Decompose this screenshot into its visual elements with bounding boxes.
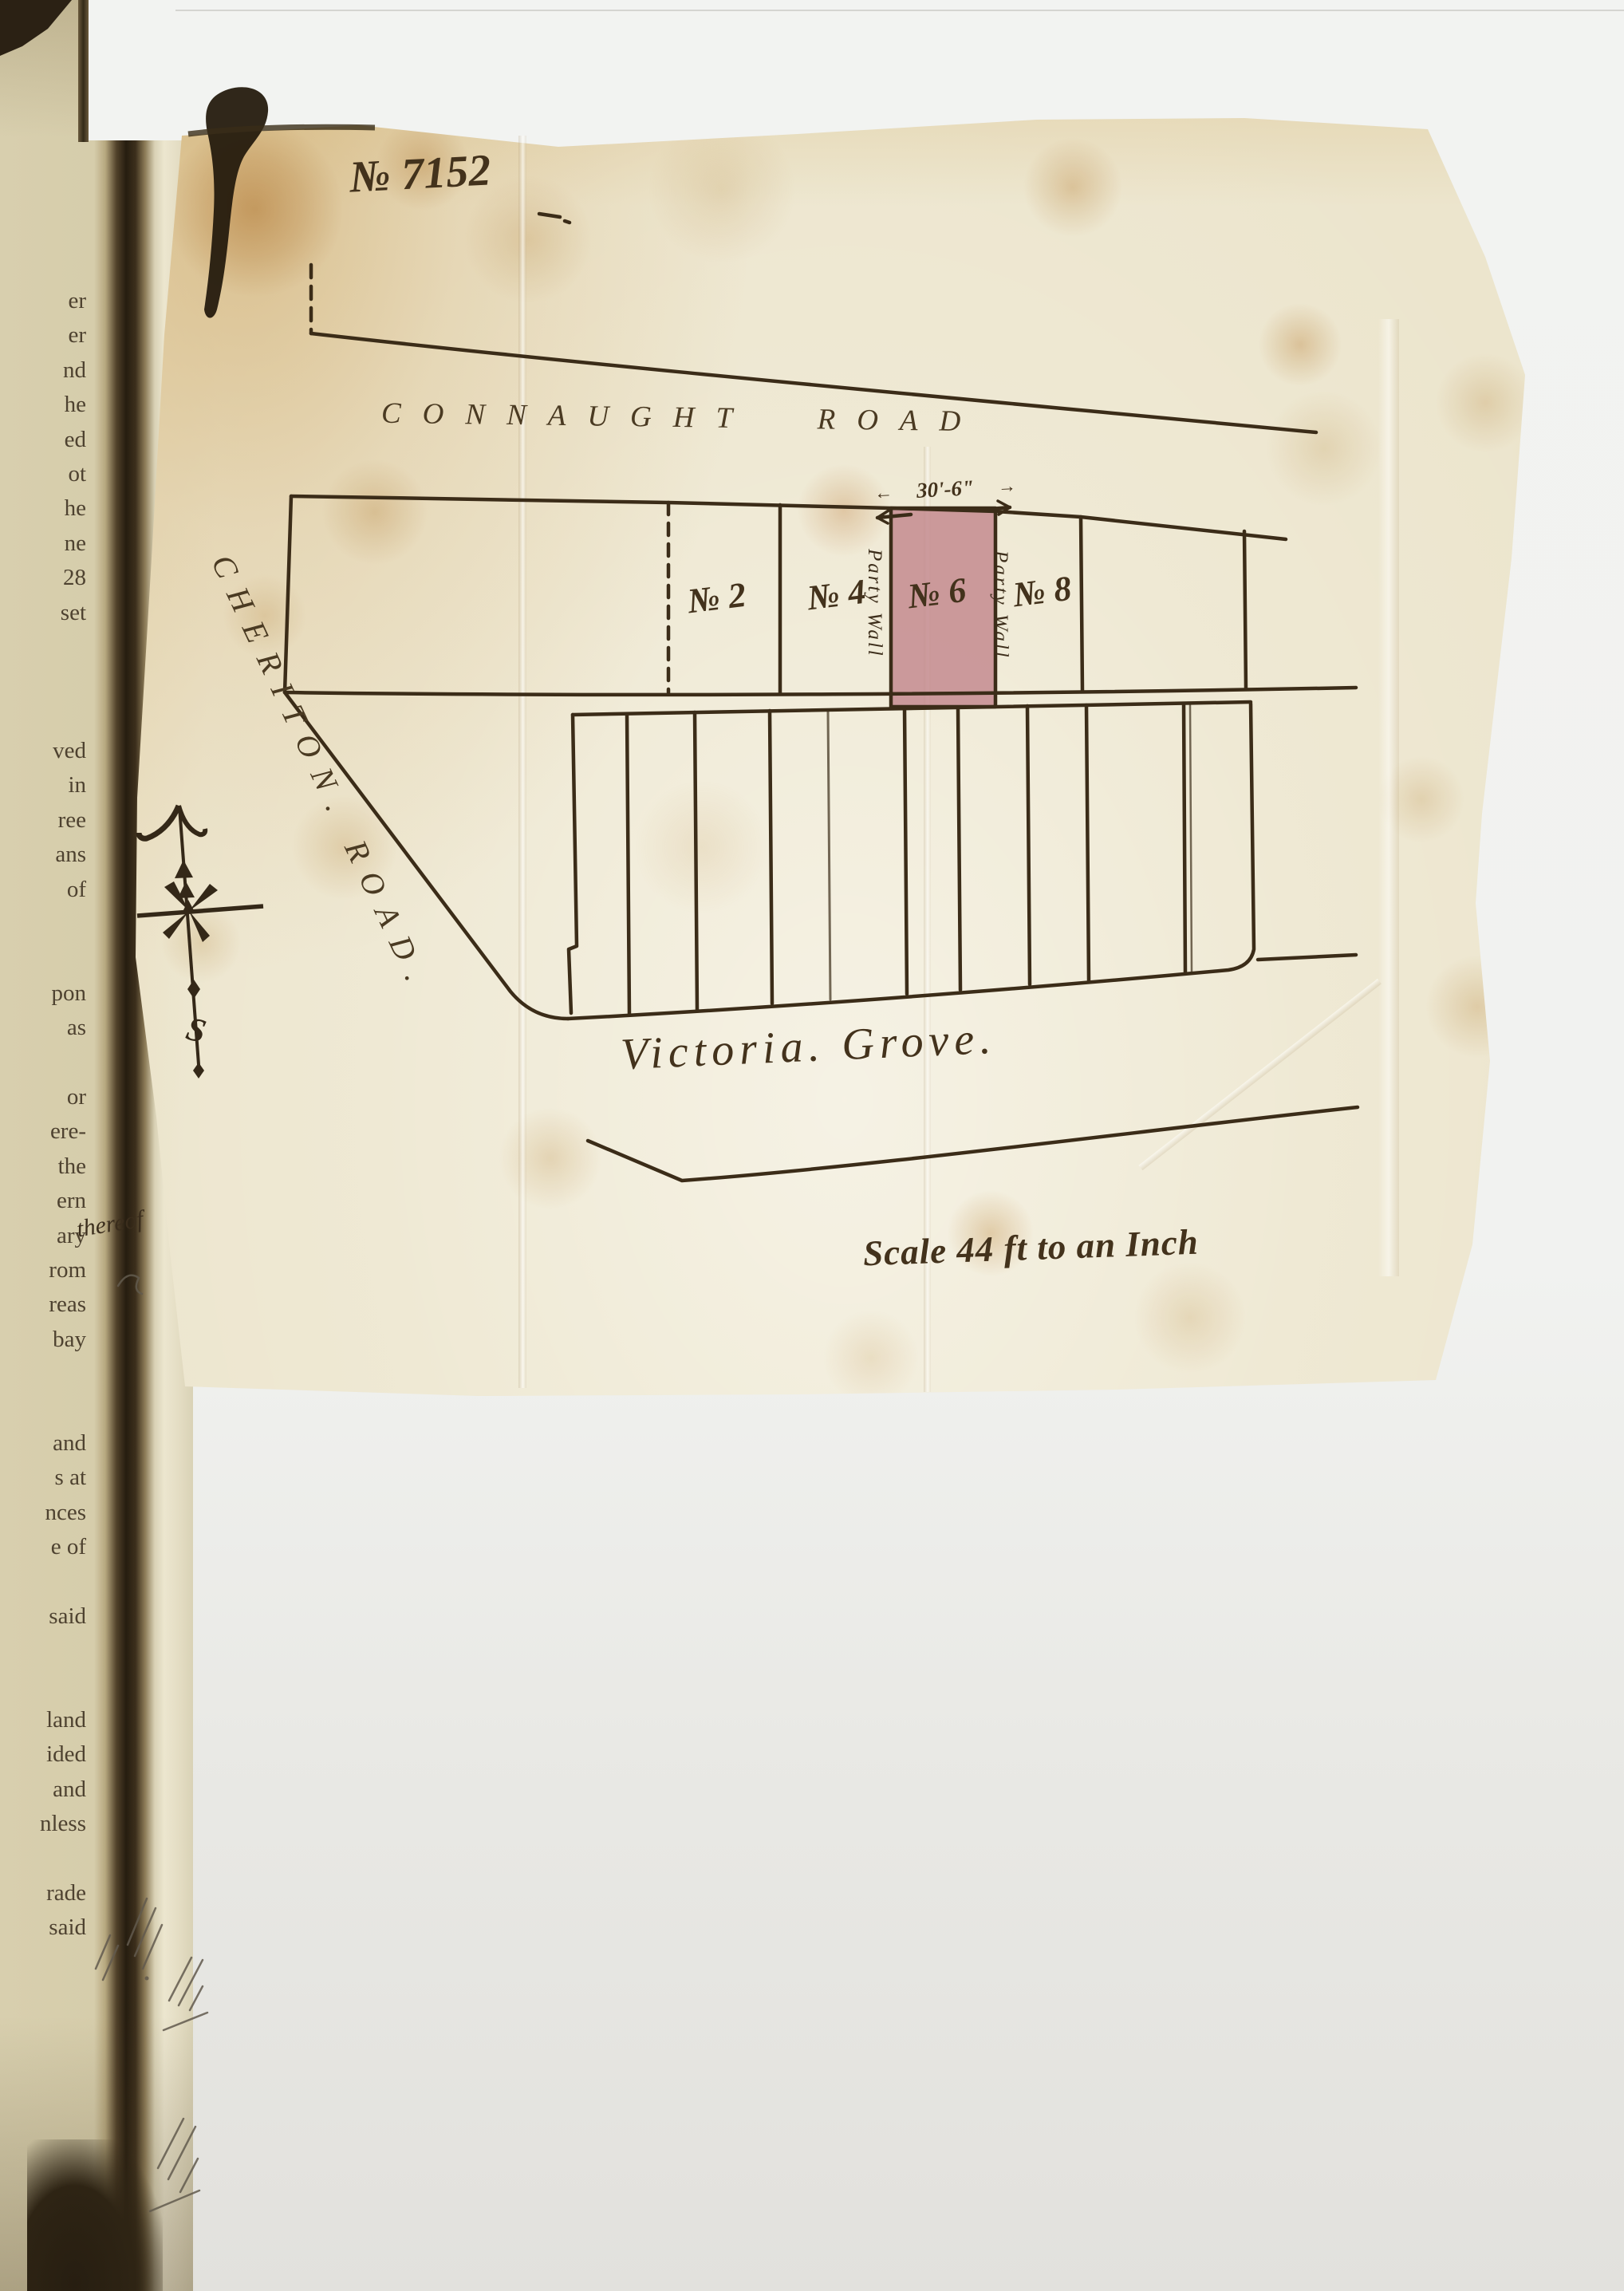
compass-crossbar — [137, 906, 263, 916]
lower-divider — [905, 708, 907, 994]
document-number: № 7152 — [348, 144, 491, 203]
lower-divider — [958, 708, 960, 990]
ink-smudge — [539, 214, 570, 223]
plot-label-no4: № 4 — [805, 571, 868, 619]
boundary-foot — [1258, 955, 1356, 960]
pencil-marks — [96, 1276, 207, 2211]
plot-label-no2: № 2 — [685, 574, 748, 622]
lower-block-left-notched — [569, 715, 577, 1013]
lower-divider — [828, 710, 830, 1000]
lower-divider — [1027, 706, 1030, 984]
lower-divider — [695, 712, 697, 1010]
plot-divider — [1081, 517, 1082, 691]
lower-divider — [1086, 705, 1089, 980]
dimension-arrow-left-icon: ← — [873, 482, 893, 503]
scanned-page: ererndheedothene28setvedinreeansofponaso… — [0, 0, 1624, 2291]
plot-label-no8: № 8 — [1011, 568, 1074, 616]
ink-blob — [204, 87, 268, 317]
lower-divider — [1190, 704, 1192, 973]
victoria-grove-south-line — [588, 1107, 1358, 1181]
party-wall-label-left: Party Wall — [863, 549, 885, 744]
dimension-arrow-right-icon: → — [997, 475, 1016, 497]
upper-block-front — [291, 496, 1286, 539]
plan-drawing — [0, 0, 1624, 2291]
plot-divider — [1244, 531, 1246, 689]
lower-divider — [627, 714, 629, 1015]
lower-divider — [770, 711, 772, 1004]
plot-label-no6: № 6 — [905, 570, 968, 617]
dimension-value: 30'-6" — [916, 475, 975, 503]
back-line — [285, 688, 1356, 695]
lower-block-bottom-right — [568, 704, 1254, 1019]
lower-divider — [1184, 704, 1185, 973]
party-wall-label-right: Party Wall — [989, 550, 1011, 746]
